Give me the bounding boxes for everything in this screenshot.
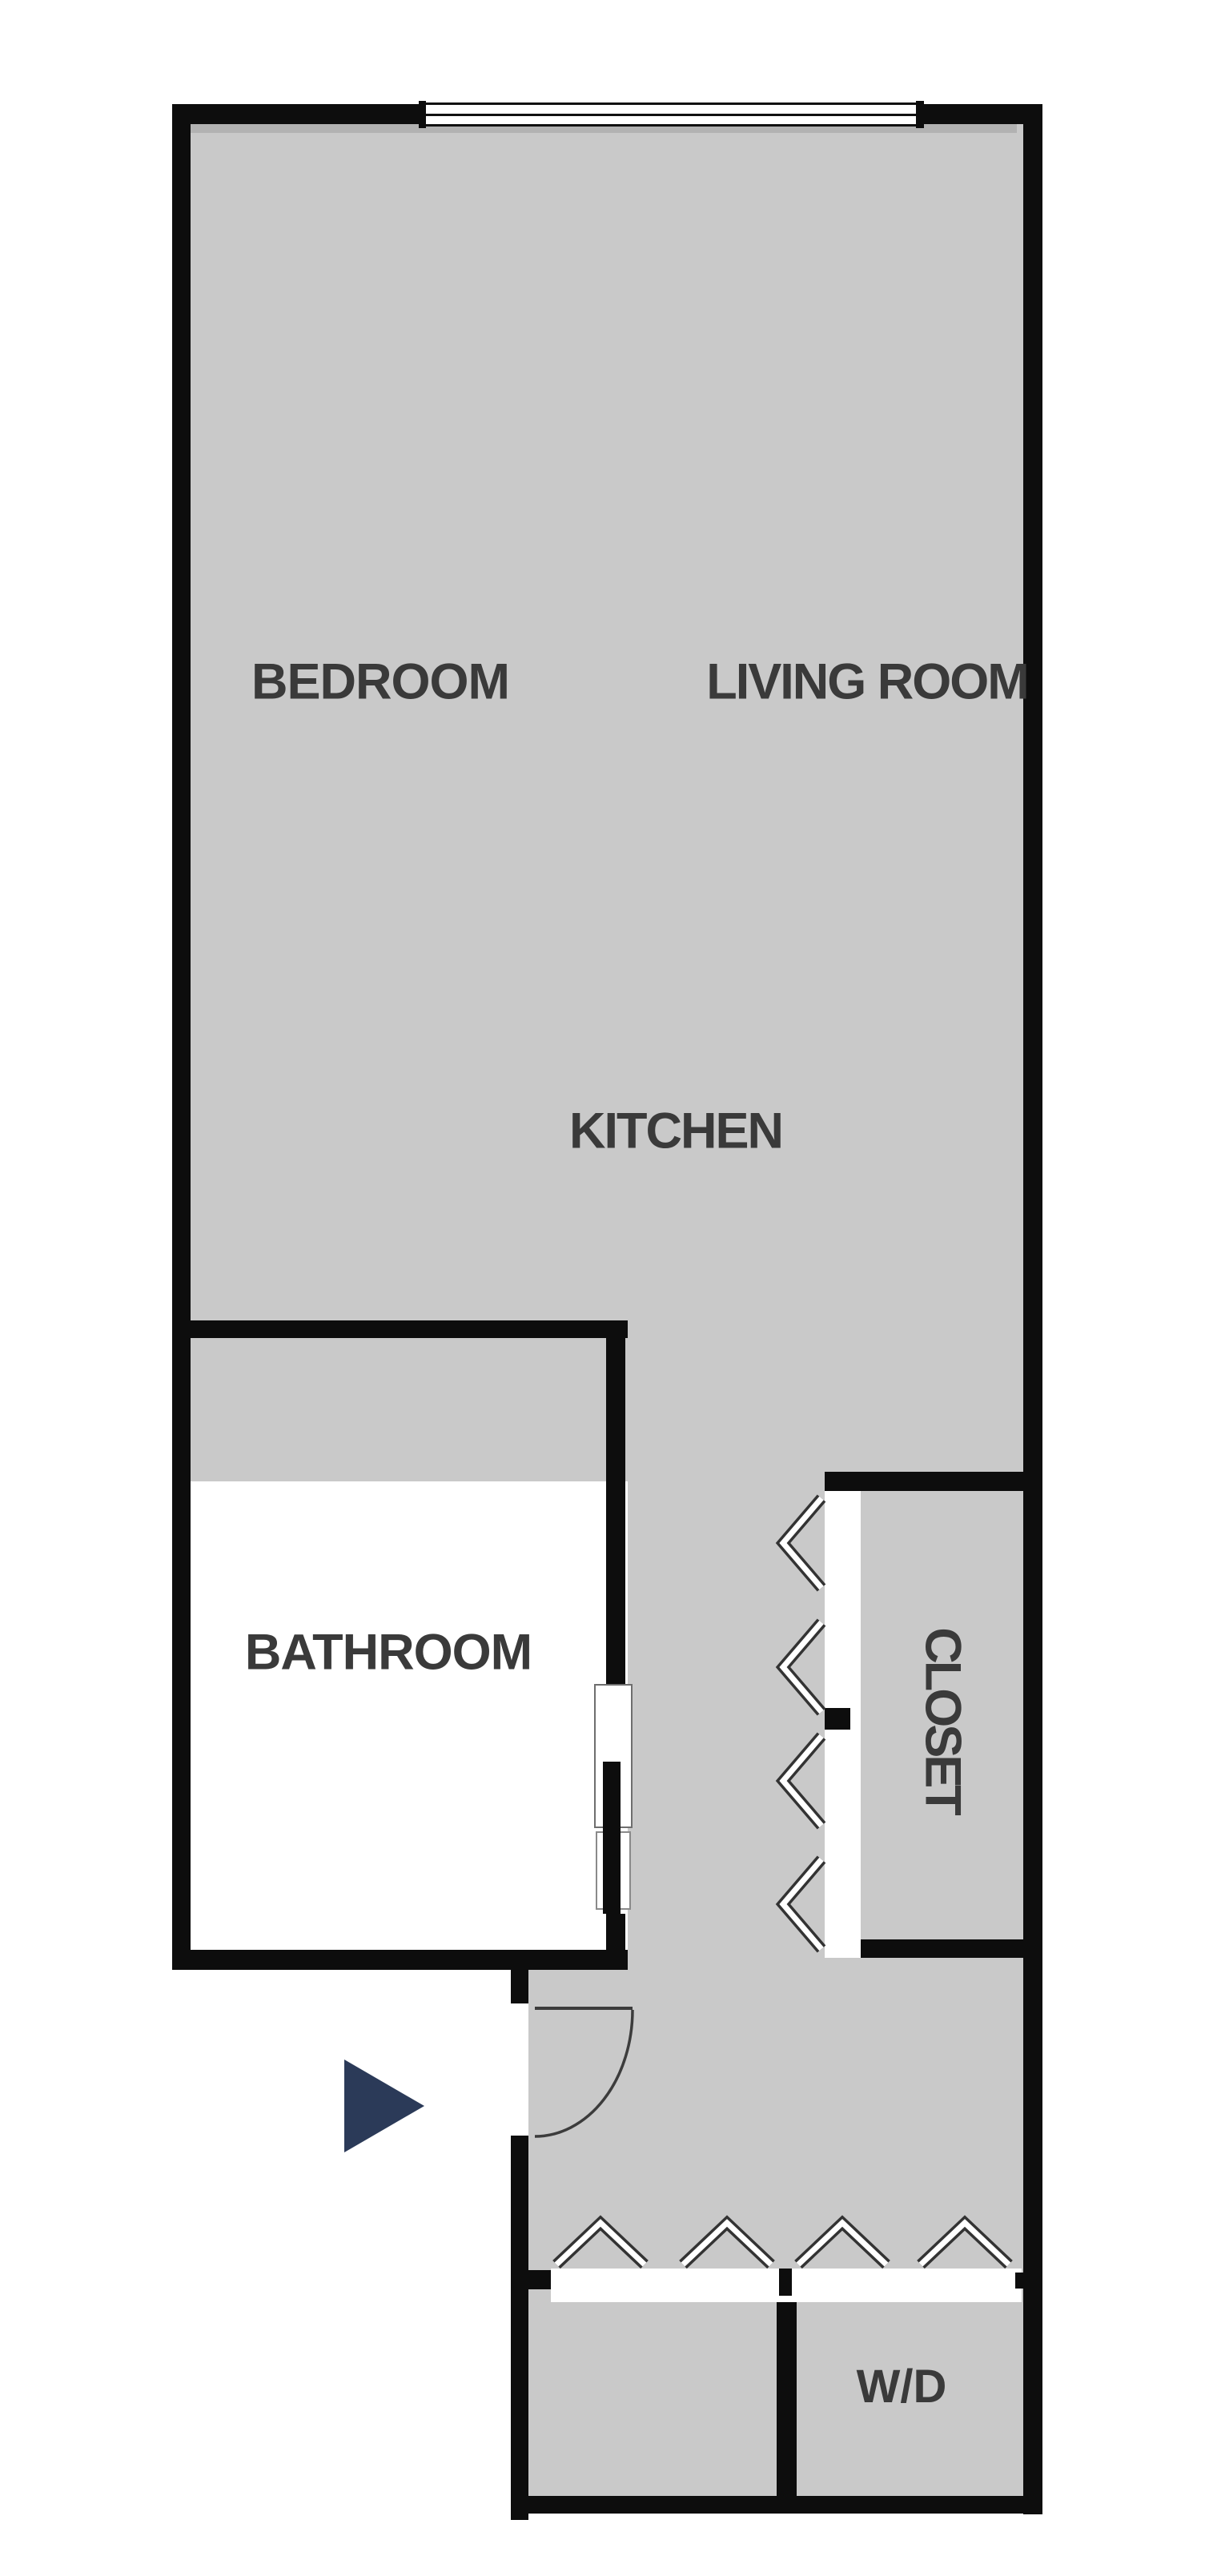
entry-door-swing-arc (535, 2010, 633, 2136)
entry-direction-arrow-icon (344, 2060, 424, 2152)
room-label-bathroom: BATHROOM (245, 1628, 532, 1678)
floor-plan: BEDROOM LIVING ROOM KITCHEN BATHROOM CLO… (0, 0, 1217, 2576)
entry-door (535, 2008, 633, 2136)
room-label-bedroom: BEDROOM (251, 657, 509, 708)
room-label-kitchen: KITCHEN (569, 1107, 782, 1157)
hall-closet-bifold-chevron-icons (556, 2223, 1009, 2265)
room-label-living-room: LIVING ROOM (706, 657, 1028, 708)
room-label-closet: CLOSET (918, 1627, 968, 1813)
closet-bifold-chevron-icons (783, 1498, 821, 1949)
room-label-washer-dryer: W/D (857, 2364, 947, 2410)
floorplan-vector-overlay (0, 0, 1217, 2576)
